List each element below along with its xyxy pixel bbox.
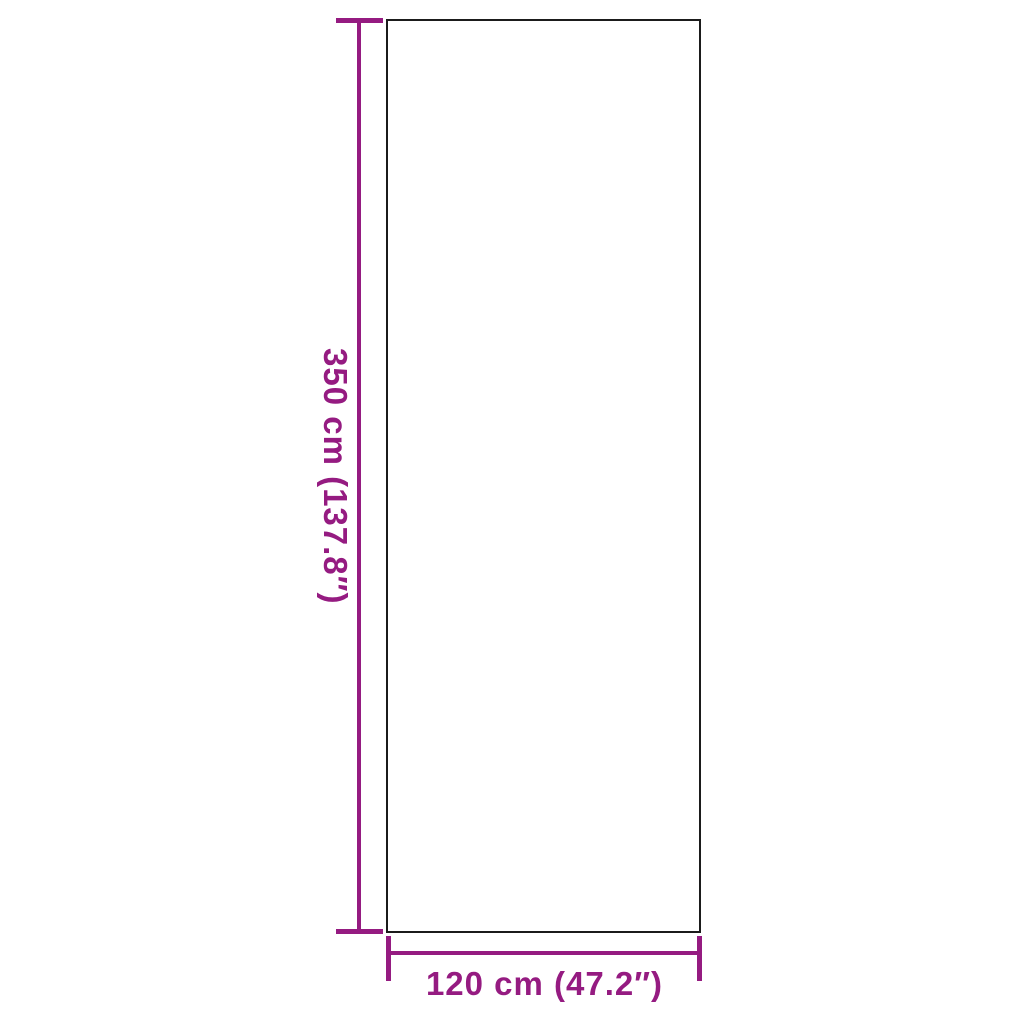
width-dimension-line xyxy=(388,951,701,955)
product-outline-rectangle xyxy=(386,19,701,933)
width-dimension-label: 120 cm (47.2″) xyxy=(388,965,701,1003)
dimension-diagram: 350 cm (137.8″) 120 cm (47.2″) xyxy=(0,0,1024,1024)
height-dimension-line xyxy=(357,19,361,934)
height-dimension-label: 350 cm (137.8″) xyxy=(312,19,354,934)
